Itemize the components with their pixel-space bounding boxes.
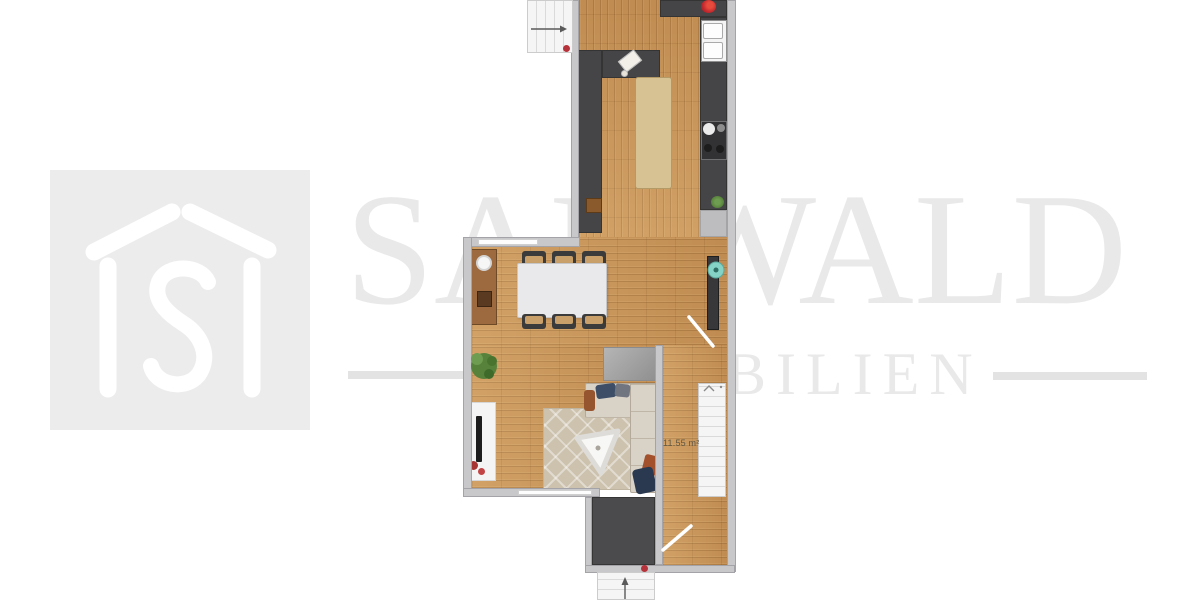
stove-burner-3 [716, 145, 724, 153]
dining-chair [552, 314, 576, 329]
lower-stairs [597, 572, 655, 600]
sideboard-box [477, 291, 492, 307]
stove-pot [703, 123, 715, 135]
counter-crate [586, 198, 602, 213]
hall-divider-wall [655, 345, 663, 565]
kitchen-plant-icon [711, 196, 724, 208]
cutting-board-bowl [621, 70, 628, 77]
dining-chair [522, 314, 546, 329]
sink-basin-top [703, 23, 723, 39]
kettle-icon [701, 0, 716, 13]
right-stairs [698, 383, 726, 497]
kitchen-island [635, 77, 672, 189]
stove-burner-2 [704, 144, 712, 152]
chair-seat [525, 316, 543, 324]
stove-burner-1 [717, 124, 725, 132]
right-wall [727, 0, 736, 572]
area-label: 11.55 m² [663, 438, 699, 448]
sink-basin-bottom [703, 42, 723, 59]
pillow-navy [595, 383, 617, 400]
pillow-brown [584, 390, 595, 411]
dining-table [517, 263, 607, 318]
marker-dot-bottom [641, 565, 648, 572]
tall-cabinet [707, 256, 719, 330]
dark-room-floor [592, 497, 655, 565]
lower-left-wall [585, 497, 592, 567]
dining-window [478, 239, 538, 245]
fireplace-unit [603, 347, 657, 381]
floorplan: 11.55 m² [0, 0, 1200, 600]
rug [543, 408, 632, 490]
decor-red-2 [478, 468, 485, 475]
sideboard-plate [476, 255, 492, 271]
kitchen-wall-block [700, 210, 727, 237]
living-window [518, 490, 592, 495]
chair-seat [585, 316, 603, 324]
dining-chair [582, 314, 606, 329]
floorplan-page: SANWALD IMMOBILIEN S [0, 0, 1200, 600]
tv-icon [476, 416, 482, 462]
pillow-gray [614, 383, 630, 397]
chair-seat [555, 316, 573, 324]
marker-dot-top [563, 45, 570, 52]
left-wall [463, 237, 472, 497]
kitchen-counter-top [660, 0, 727, 17]
